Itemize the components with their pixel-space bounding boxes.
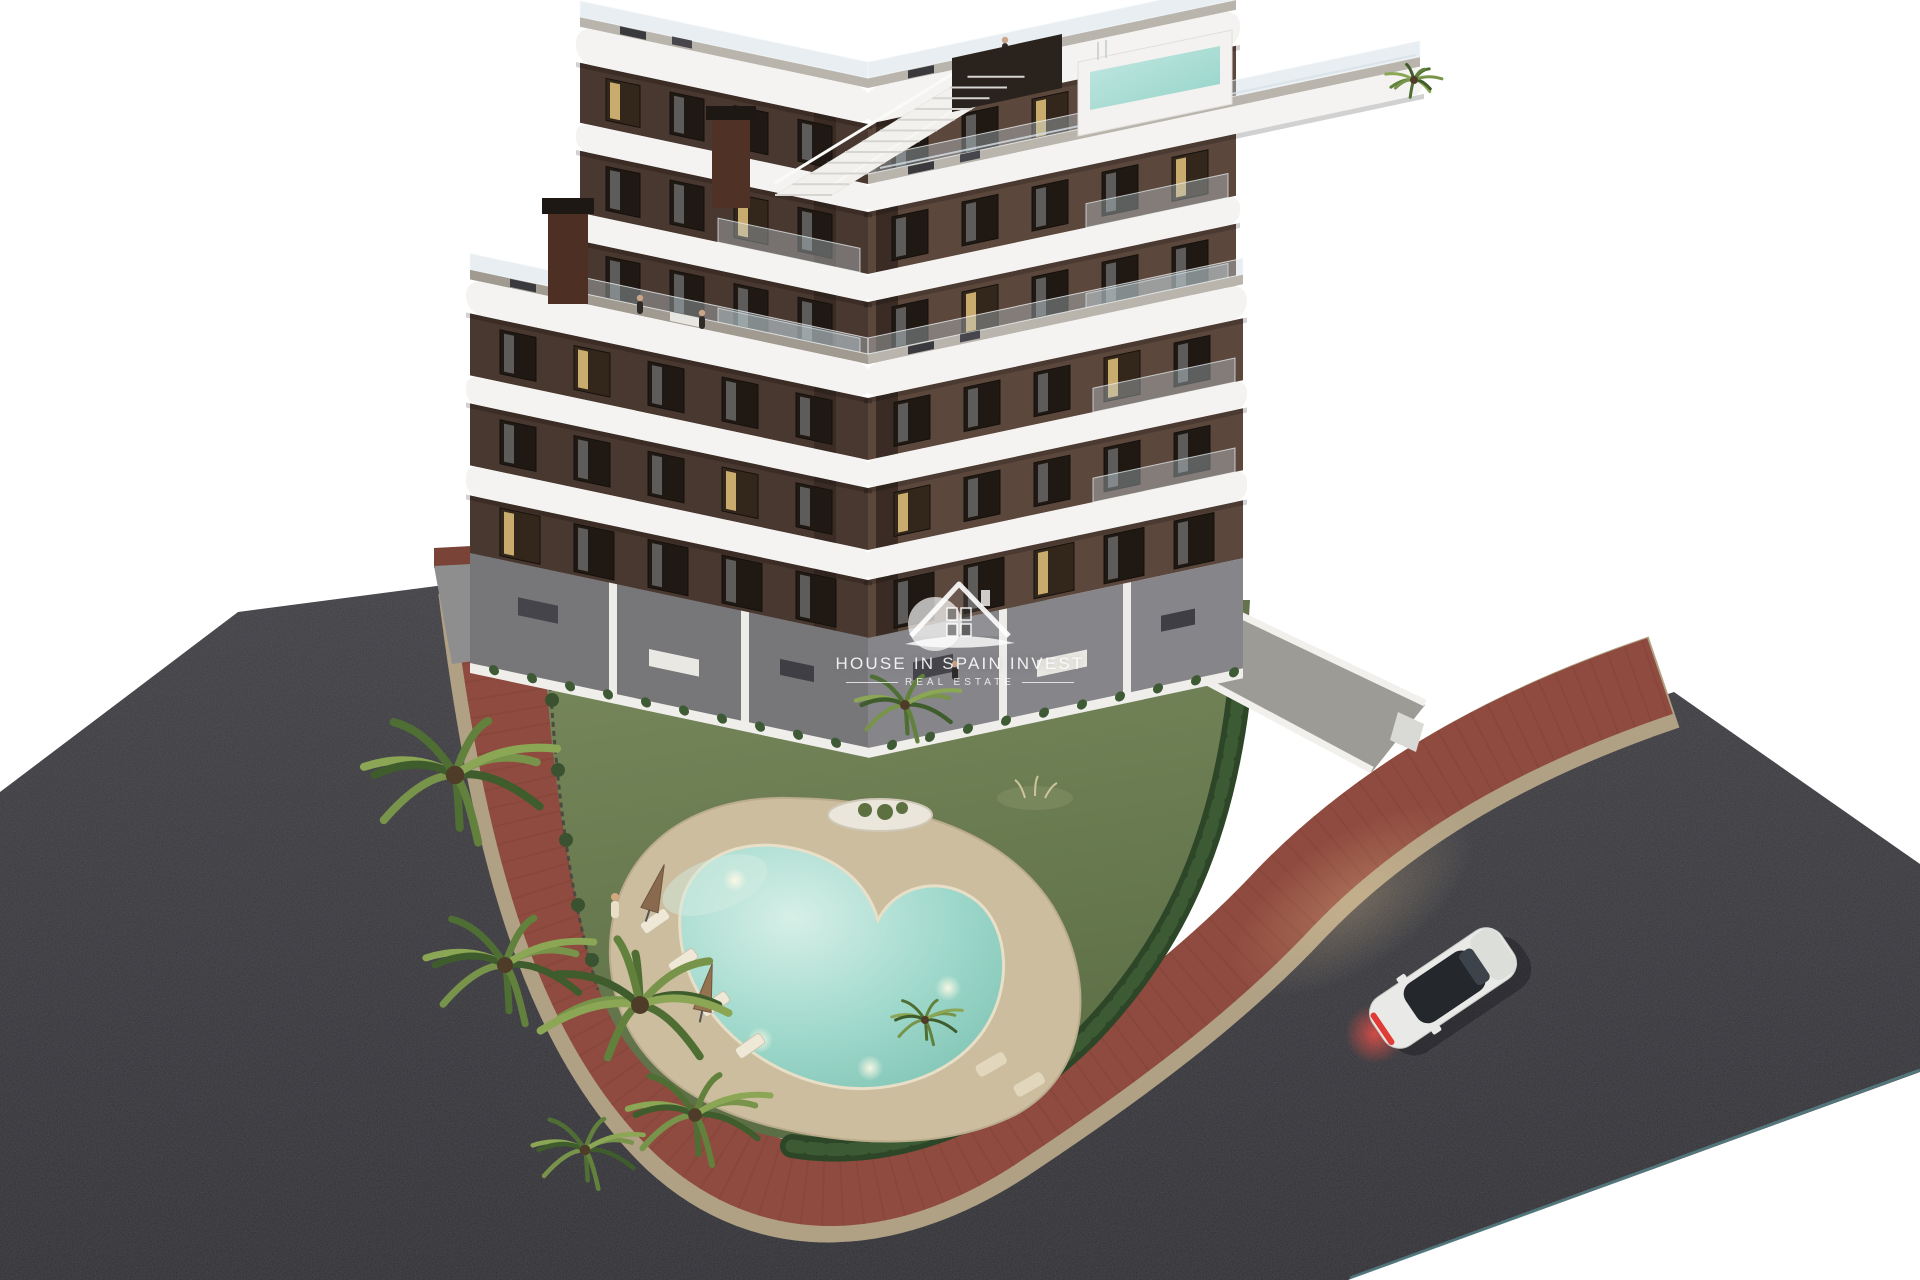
window-curtain [726, 471, 736, 511]
window-curtain [504, 424, 514, 464]
chimney-cap [706, 106, 756, 120]
window-curtain [610, 82, 620, 120]
palm-frond [1414, 77, 1442, 80]
palm-crown [631, 996, 649, 1014]
window-curtain [504, 334, 514, 374]
window-curtain [610, 170, 620, 210]
window-curtain [802, 123, 812, 161]
window-curtain [800, 575, 810, 619]
window-curtain [726, 559, 736, 603]
window-curtain [968, 478, 978, 518]
palm-crown [446, 766, 464, 784]
window-curtain [504, 512, 514, 556]
window-curtain [578, 349, 588, 389]
scene-illustration [0, 0, 1920, 1280]
window-curtain [578, 439, 588, 479]
window-curtain [1038, 463, 1048, 503]
palm-crown [921, 1016, 929, 1024]
window-curtain [652, 365, 662, 405]
window-curtain [800, 487, 810, 527]
window-curtain [1178, 521, 1188, 565]
palm-crown [497, 957, 513, 973]
window-curtain [966, 202, 976, 242]
palm-crown [1410, 76, 1418, 84]
privacy-wall [609, 583, 617, 703]
window-curtain [726, 381, 736, 421]
privacy-wall [999, 608, 1007, 728]
window-curtain [968, 566, 978, 610]
window-curtain [652, 455, 662, 495]
chimney [548, 212, 588, 304]
palm-crown [900, 700, 910, 710]
window-curtain [652, 543, 662, 587]
window-curtain [898, 492, 908, 532]
window-curtain [1038, 551, 1048, 595]
window-curtain [1038, 373, 1048, 413]
chimney [712, 120, 750, 208]
render-canvas: HOUSE IN SPAIN INVEST REAL ESTATE [0, 0, 1920, 1280]
privacy-wall [1123, 582, 1131, 702]
window-curtain [800, 397, 810, 437]
window-curtain [674, 184, 684, 224]
window-curtain [898, 580, 908, 624]
window-curtain [1036, 187, 1046, 227]
palm-crown [580, 1145, 591, 1156]
privacy-wall [741, 611, 749, 731]
window-curtain [898, 402, 908, 442]
chimney-cap [542, 198, 594, 214]
person-poolside [611, 893, 619, 918]
window-curtain [896, 217, 906, 257]
window-curtain [578, 527, 588, 571]
person [637, 295, 643, 314]
person [952, 661, 958, 680]
window-curtain [674, 96, 684, 134]
palm-crown [688, 1108, 702, 1122]
window-curtain [1108, 536, 1118, 580]
window-curtain [968, 388, 978, 428]
person [699, 310, 705, 329]
